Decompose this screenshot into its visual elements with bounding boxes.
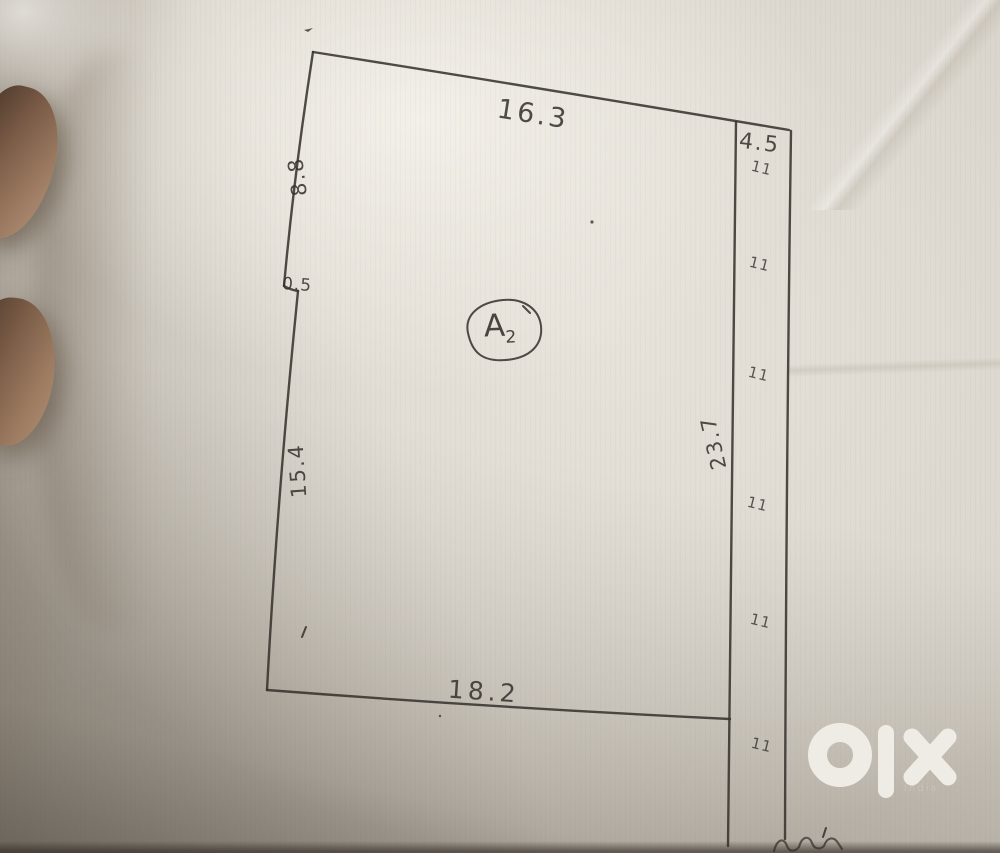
handwritten-scribble — [0, 0, 1000, 853]
photo-canvas: 16.3 4.5 8.8 0.5 15.4 23.7 18.2 11 11 11… — [0, 0, 1000, 853]
paper-bottom-edge-shadow — [0, 841, 1000, 853]
